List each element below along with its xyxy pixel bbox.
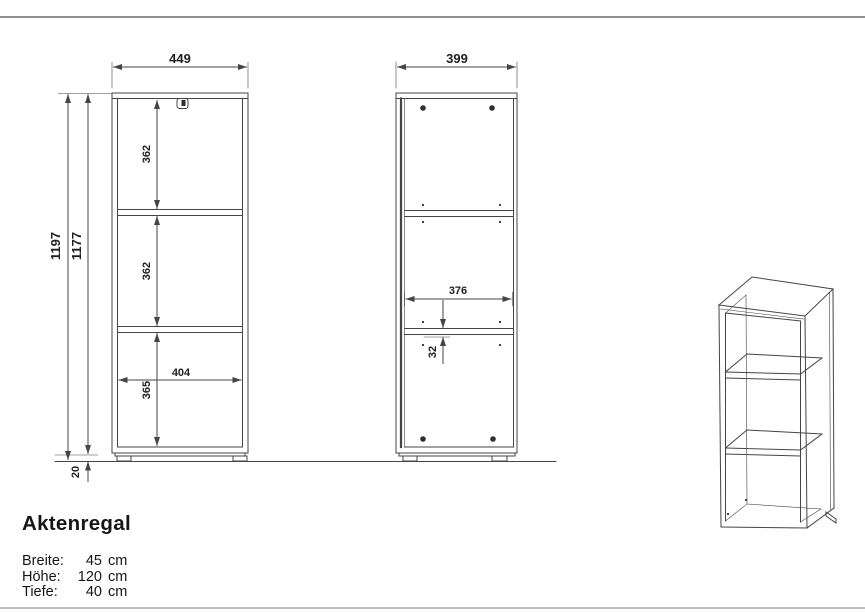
dim-compartment-bottom-label: 365 (141, 381, 153, 399)
spec-value: 120 (74, 570, 102, 586)
front-view-carcass (112, 93, 248, 461)
side-view: 399 376 32 (396, 51, 517, 461)
dim-carcass-height: 1177 (55, 94, 98, 455)
dim-front-width-label: 449 (169, 51, 191, 66)
dim-compartment-bottom: 365 (141, 333, 157, 446)
dim-inner-depth-label: 376 (449, 285, 467, 297)
spec-value: 45 (74, 554, 102, 570)
spec-label: Höhe: (22, 570, 74, 586)
dim-shelf-offset: 32 (424, 300, 450, 364)
spec-row-depth: Tiefe: 40 cm (22, 585, 131, 601)
caption-block: Aktenregal Breite: 45 cm Höhe: 120 cm Ti… (22, 512, 131, 601)
shelf-pin-dots (422, 204, 501, 346)
side-view-carcass (396, 93, 517, 461)
spec-label: Breite: (22, 554, 74, 570)
top-fitting-detail (177, 99, 188, 109)
perspective-view (719, 277, 836, 528)
bottom-border-line (0, 607, 865, 609)
dim-compartment-middle: 362 (141, 216, 157, 326)
dim-total-height: 1197 (48, 94, 111, 461)
spec-unit: cm (108, 585, 127, 601)
spec-row-height: Höhe: 120 cm (22, 570, 131, 586)
dim-inner-depth: 376 (405, 285, 513, 306)
dim-carcass-height-label: 1177 (69, 232, 84, 260)
dim-compartment-middle-label: 362 (141, 262, 153, 280)
dim-side-depth: 399 (396, 51, 517, 88)
iso-shelf-1 (726, 354, 823, 380)
dim-foot-height-label: 20 (70, 466, 82, 478)
dim-inner-width: 404 (119, 367, 242, 380)
cam-bolt-dots (420, 105, 496, 442)
spec-label: Tiefe: (22, 585, 74, 601)
dim-compartment-top: 362 (141, 100, 157, 209)
dim-compartment-top-label: 362 (141, 145, 153, 163)
technical-drawing-page: 449 1197 1177 20 362 (0, 0, 865, 613)
dim-foot-height: 20 (70, 462, 88, 483)
dim-inner-width-label: 404 (172, 367, 191, 379)
spec-unit: cm (108, 554, 127, 570)
spec-row-width: Breite: 45 cm (22, 554, 131, 570)
iso-shelf-2 (726, 430, 823, 456)
spec-value: 40 (74, 585, 102, 601)
iso-details (727, 499, 836, 523)
front-view: 449 1197 1177 20 362 (48, 51, 248, 482)
dim-front-width: 449 (112, 51, 248, 88)
dim-total-height-label: 1197 (48, 232, 63, 260)
spec-unit: cm (108, 570, 127, 586)
product-title: Aktenregal (22, 512, 131, 536)
iso-outer-body (719, 277, 834, 528)
dim-side-depth-label: 399 (446, 51, 468, 66)
dim-shelf-offset-label: 32 (427, 346, 439, 358)
